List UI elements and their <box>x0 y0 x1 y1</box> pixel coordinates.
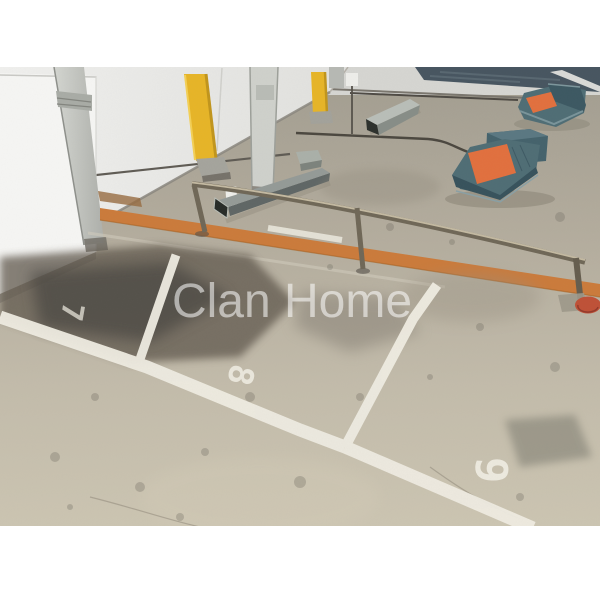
photo: 7 8 9 Clan Home <box>0 67 600 526</box>
parking-garage-scene: 7 8 9 Clan Home <box>0 67 600 526</box>
letterboxed-photo-page: 7 8 9 Clan Home <box>0 0 600 600</box>
watermark-text: Clan Home <box>172 275 412 328</box>
